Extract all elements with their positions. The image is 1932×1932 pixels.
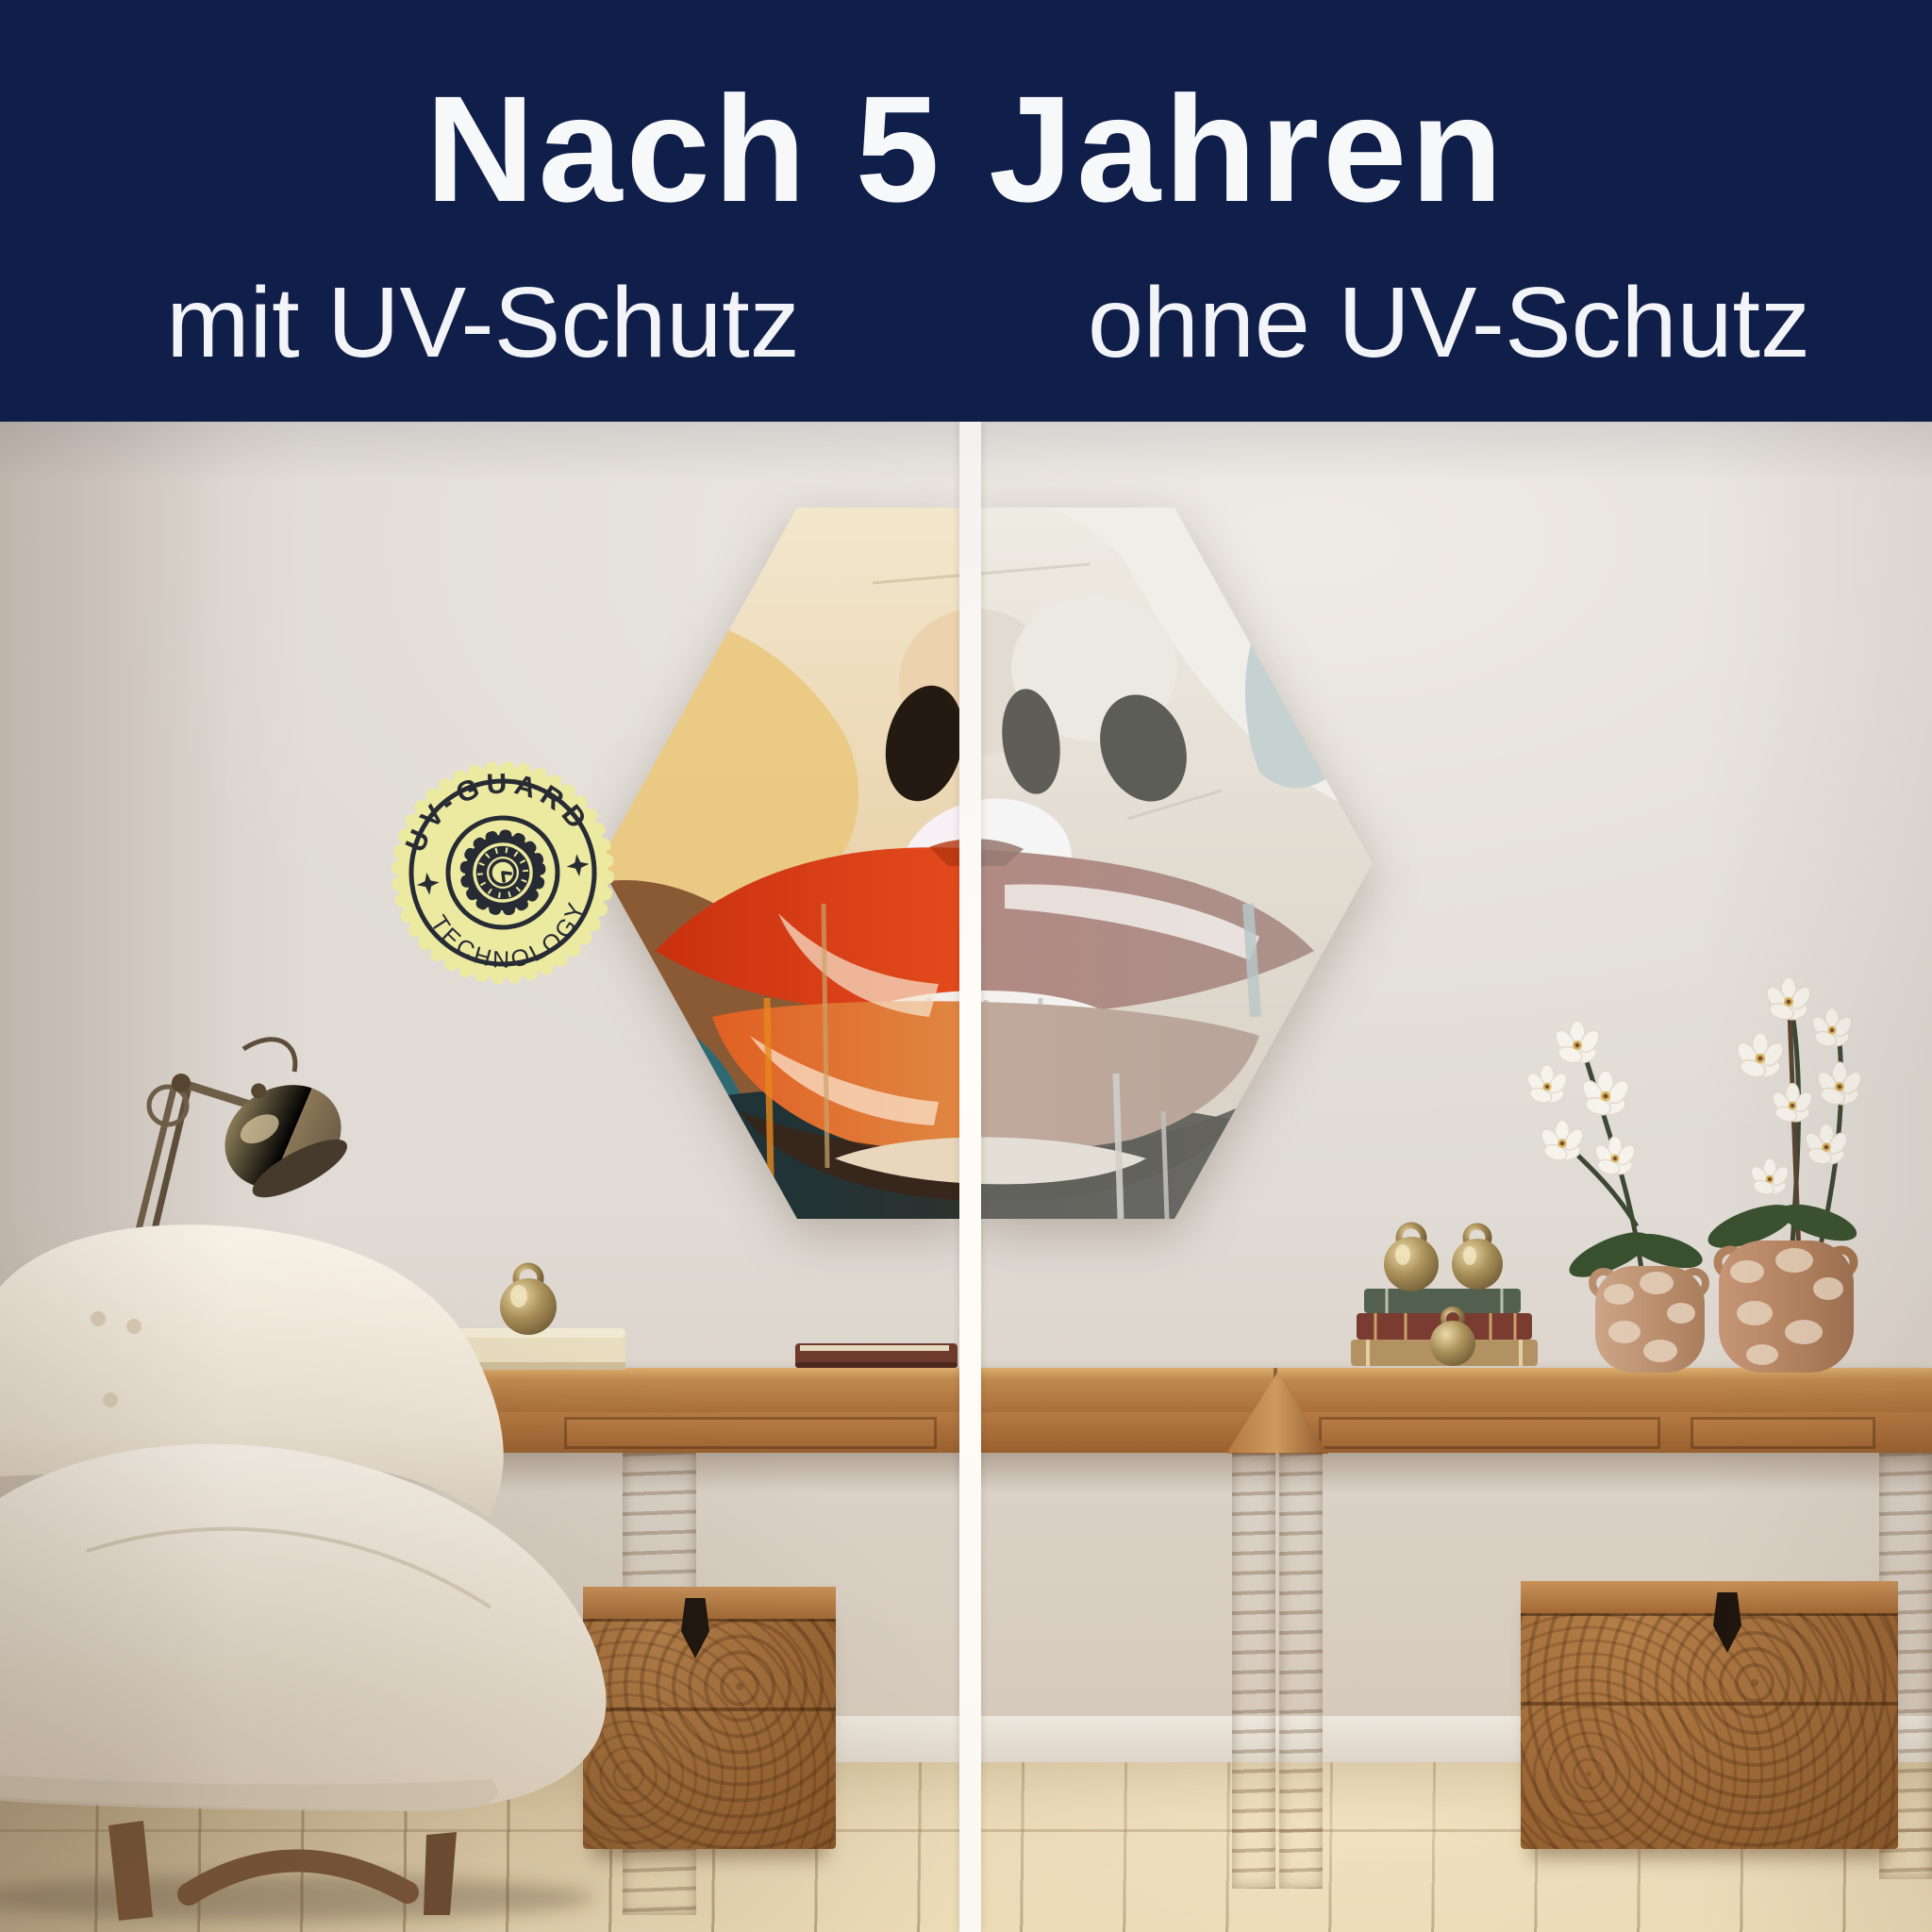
comparison-labels: mit UV-Schutz ohne UV-Schutz <box>0 266 1932 380</box>
header-banner: Nach 5 Jahren mit UV-Schutz ohne UV-Schu… <box>0 0 1932 422</box>
label-with-uv-protection: mit UV-Schutz <box>0 266 966 380</box>
page-title: Nach 5 Jahren <box>0 62 1932 236</box>
chair-arm-cushion <box>0 1444 606 1810</box>
label-without-uv-protection: ohne UV-Schutz <box>966 266 1932 380</box>
comparison-divider <box>959 422 981 1932</box>
product-comparison-image: UV-GUARD TECHNOLOGY <box>0 0 1932 1932</box>
room-photo: UV-GUARD TECHNOLOGY <box>0 422 1932 1932</box>
armchair <box>0 1224 606 1921</box>
